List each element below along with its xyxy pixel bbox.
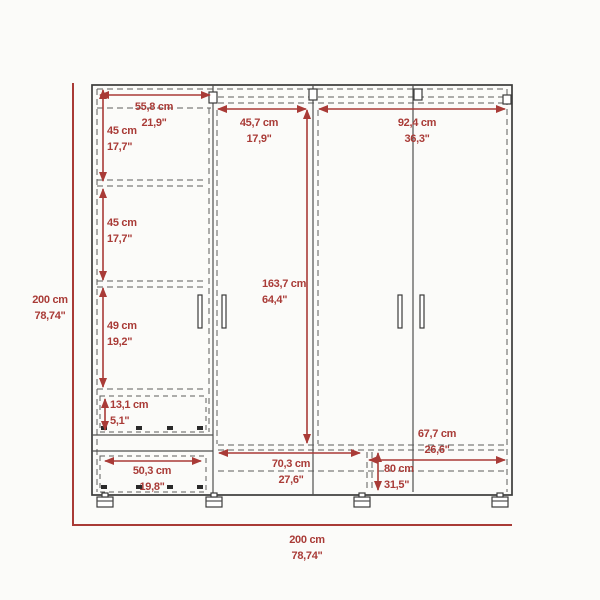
dim-value-in: 31,5": [384, 477, 444, 493]
dim-value-cm: 55,8 cm: [112, 99, 196, 115]
dim-label-bottom-right-height: 80 cm 31,5": [384, 461, 444, 493]
dim-value-cm: 200 cm: [8, 292, 92, 308]
dim-label-drawer-width: 50,3 cm 19,8": [110, 463, 194, 495]
dim-label-door-height: 163,7 cm 64,4": [262, 276, 332, 308]
dim-value-in: 78,74": [8, 308, 92, 324]
dim-value-in: 19,8": [110, 479, 194, 495]
dim-label-single-door-width: 45,7 cm 17,9": [217, 115, 301, 147]
dim-value-cm: 80 cm: [384, 461, 444, 477]
dim-value-cm: 45 cm: [107, 215, 167, 231]
dim-value-cm: 92,4 cm: [375, 115, 459, 131]
dim-value-cm: 45 cm: [107, 123, 167, 139]
dim-label-lower-shelf-gap: 49 cm 19,2": [107, 318, 167, 350]
wardrobe-dimension-diagram: 200 cm 78,74" 200 cm 78,74" 55,8 cm 21,9…: [0, 0, 600, 600]
dim-value-in: 27,6": [249, 472, 333, 488]
dim-value-cm: 67,7 cm: [395, 426, 479, 442]
dim-label-overall-height: 200 cm 78,74": [8, 292, 92, 324]
dim-label-drawer-height: 13,1 cm 5,1": [110, 397, 170, 429]
dim-value-in: 17,9": [217, 131, 301, 147]
dim-label-middle-shelf-gap: 45 cm 17,7": [107, 215, 167, 247]
dim-label-double-door-width: 92,4 cm 36,3": [375, 115, 459, 147]
dim-value-cm: 13,1 cm: [110, 397, 170, 413]
dim-label-bottom-right-width: 67,7 cm 26,6": [395, 426, 479, 458]
dim-value-cm: 50,3 cm: [110, 463, 194, 479]
dim-value-in: 78,74": [265, 548, 349, 564]
dim-value-in: 19,2": [107, 334, 167, 350]
dim-label-upper-shelf-gap: 45 cm 17,7": [107, 123, 167, 155]
dim-value-in: 26,6": [395, 442, 479, 458]
dim-value-in: 17,7": [107, 231, 167, 247]
dim-value-in: 64,4": [262, 292, 332, 308]
dim-value-cm: 163,7 cm: [262, 276, 332, 292]
dim-value-cm: 70,3 cm: [249, 456, 333, 472]
dim-label-bottom-shelf-width: 70,3 cm 27,6": [249, 456, 333, 488]
dim-value-in: 5,1": [110, 413, 170, 429]
dim-value-cm: 45,7 cm: [217, 115, 301, 131]
dim-label-overall-width: 200 cm 78,74": [265, 532, 349, 564]
dim-value-in: 36,3": [375, 131, 459, 147]
dim-value-cm: 49 cm: [107, 318, 167, 334]
dim-value-in: 17,7": [107, 139, 167, 155]
dim-value-cm: 200 cm: [265, 532, 349, 548]
